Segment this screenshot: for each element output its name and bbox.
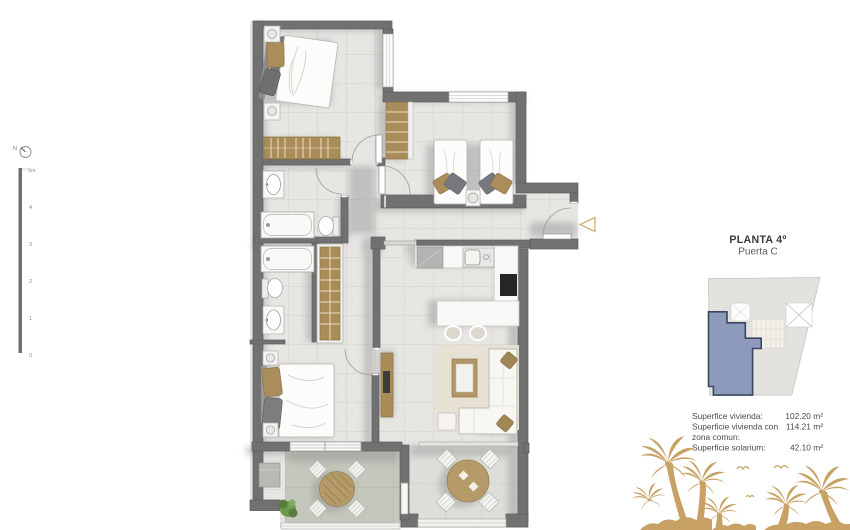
svg-text:4: 4: [29, 205, 32, 211]
svg-text:2: 2: [29, 279, 32, 285]
svg-text:zona comun:: zona comun:: [692, 432, 740, 442]
svg-text:0: 0: [29, 353, 32, 359]
svg-text:102.20 m²: 102.20 m²: [785, 411, 823, 421]
svg-text:Puerta C: Puerta C: [738, 247, 777, 258]
svg-text:1: 1: [29, 316, 32, 322]
svg-text:3: 3: [29, 242, 32, 248]
svg-text:Superficie vivienda con: Superficie vivienda con: [692, 422, 778, 432]
svg-text:114.21 m²: 114.21 m²: [786, 422, 823, 432]
svg-text:42.10 m²: 42.10 m²: [790, 443, 823, 453]
svg-text:5m: 5m: [28, 168, 36, 174]
svg-text:N: N: [13, 146, 17, 152]
svg-text:Superfice vivienda:: Superfice vivienda:: [692, 411, 763, 421]
svg-text:Superficie solarium:: Superficie solarium:: [692, 443, 766, 453]
svg-text:PLANTA 4º: PLANTA 4º: [729, 234, 786, 246]
